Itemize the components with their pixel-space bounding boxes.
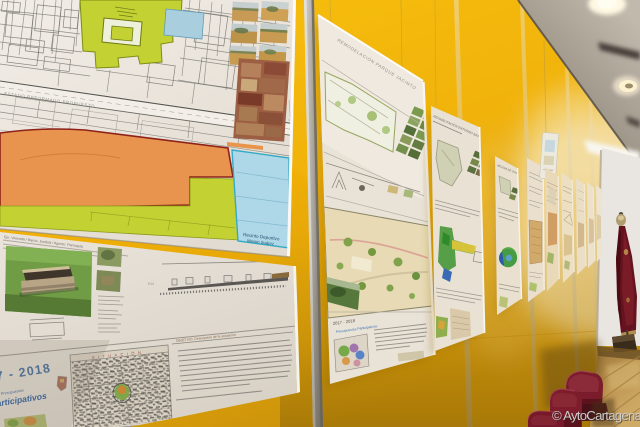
svg-text:© AytoCartagena: © AytoCartagena bbox=[552, 408, 640, 423]
svg-text:P.01: P.01 bbox=[148, 282, 155, 286]
